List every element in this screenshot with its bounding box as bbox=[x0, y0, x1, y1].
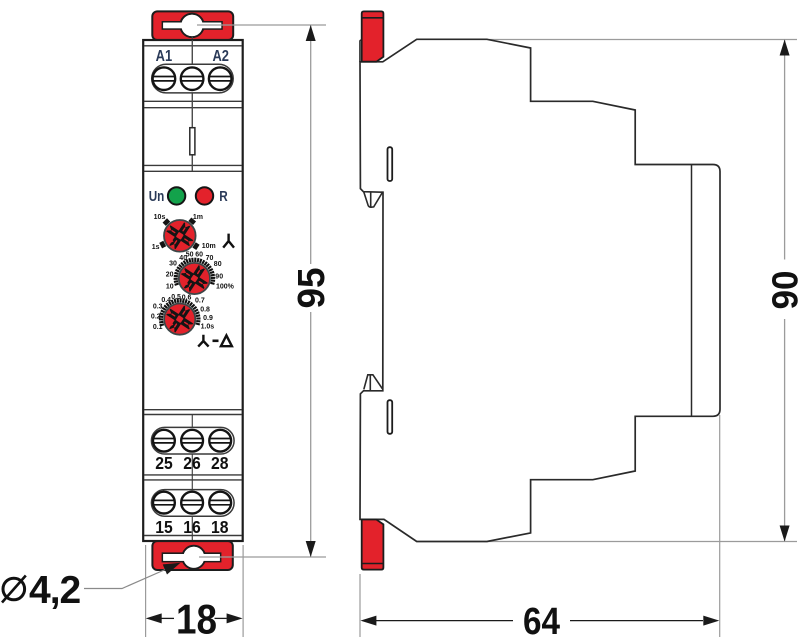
svg-text:0.9: 0.9 bbox=[203, 315, 213, 322]
svg-text:80: 80 bbox=[214, 261, 222, 268]
svg-text:0.4: 0.4 bbox=[161, 297, 171, 304]
svg-text:0.5: 0.5 bbox=[171, 294, 181, 301]
svg-text:64: 64 bbox=[523, 601, 560, 637]
svg-text:16: 16 bbox=[183, 517, 201, 537]
svg-text:0.8: 0.8 bbox=[200, 306, 210, 313]
svg-text:A2: A2 bbox=[212, 48, 229, 65]
svg-text:90: 90 bbox=[215, 273, 223, 280]
svg-text:26: 26 bbox=[183, 453, 201, 473]
svg-text:10s: 10s bbox=[154, 214, 166, 221]
svg-text:95: 95 bbox=[291, 268, 333, 309]
svg-text:50: 50 bbox=[186, 252, 194, 259]
svg-text:100%: 100% bbox=[216, 283, 235, 290]
svg-text:15: 15 bbox=[155, 517, 173, 537]
svg-text:0.7: 0.7 bbox=[195, 298, 205, 305]
svg-text:0.2: 0.2 bbox=[151, 314, 161, 321]
svg-text:0.1: 0.1 bbox=[153, 324, 163, 331]
svg-text:18: 18 bbox=[176, 596, 217, 637]
svg-text:60: 60 bbox=[195, 252, 203, 259]
svg-text:25: 25 bbox=[155, 453, 173, 473]
svg-text:0.3: 0.3 bbox=[153, 304, 163, 311]
svg-text:1m: 1m bbox=[193, 214, 203, 221]
svg-text:18: 18 bbox=[211, 517, 229, 537]
svg-text:20: 20 bbox=[166, 272, 174, 279]
svg-text:10: 10 bbox=[166, 284, 174, 291]
svg-text:A1: A1 bbox=[156, 48, 173, 65]
svg-text:0.6: 0.6 bbox=[182, 295, 192, 302]
svg-text:4,2: 4,2 bbox=[29, 569, 81, 612]
svg-text:1s: 1s bbox=[152, 244, 160, 251]
svg-text:70: 70 bbox=[206, 255, 214, 262]
svg-text:R: R bbox=[219, 188, 228, 205]
svg-text:1.0s: 1.0s bbox=[201, 324, 215, 331]
svg-text:Un: Un bbox=[149, 188, 165, 205]
svg-text:90: 90 bbox=[765, 271, 800, 310]
svg-text:30: 30 bbox=[169, 261, 177, 268]
svg-text:28: 28 bbox=[211, 453, 229, 473]
svg-text:10m: 10m bbox=[202, 243, 216, 250]
